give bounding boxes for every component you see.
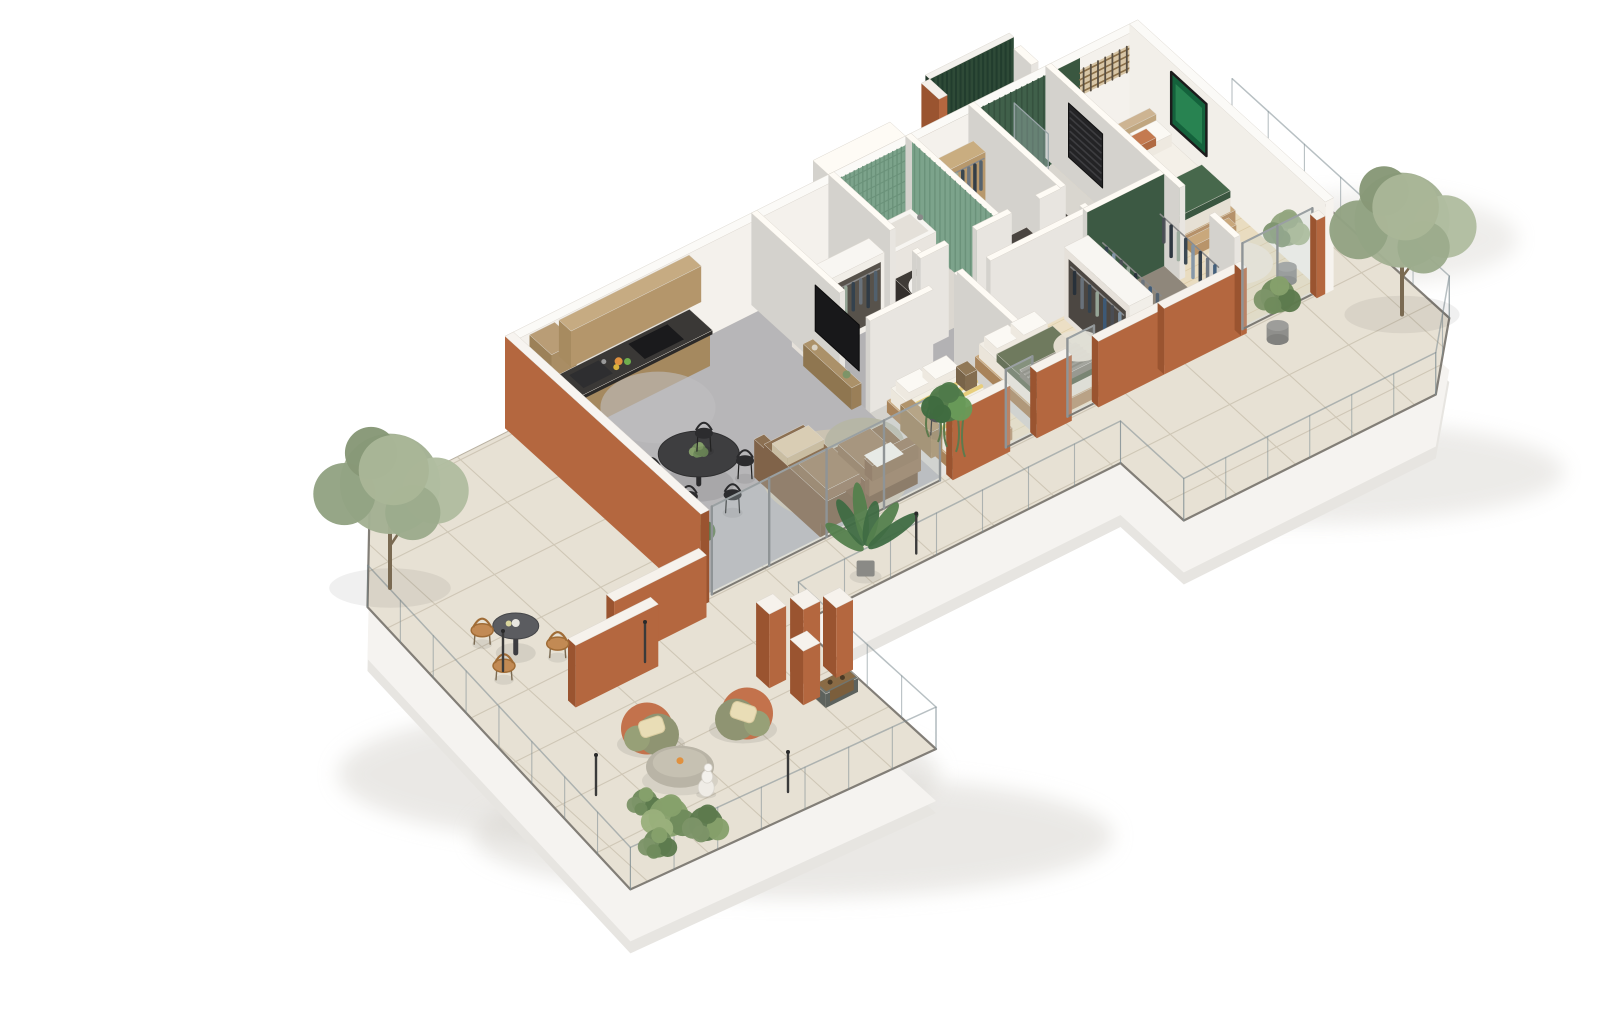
- bistro-flowers: [506, 620, 512, 626]
- floorplan-canvas: [0, 0, 1600, 1014]
- bedroom2-glass-door: [1067, 325, 1094, 416]
- console-deco: [812, 344, 818, 350]
- terracotta-planter: [823, 588, 853, 678]
- bistro-flowers: [512, 619, 520, 627]
- master-terrace-pot: [1267, 320, 1289, 345]
- bistro-chair: [547, 632, 569, 663]
- terrace-bench-pattern: [828, 680, 833, 685]
- pouf-toy: [677, 757, 684, 764]
- bathtub-faucet: [917, 214, 923, 220]
- console-plant: [843, 370, 851, 378]
- terrace-olive-tree: [1329, 166, 1476, 333]
- bedroom1-glass-door: [1006, 356, 1033, 447]
- terracotta-planter: [790, 631, 820, 705]
- kitchen-faucet: [601, 359, 606, 364]
- terracotta-planter: [756, 594, 786, 688]
- bistro-chair: [471, 619, 493, 650]
- fruit-bowl: [615, 357, 623, 365]
- fruit-bowl: [613, 364, 619, 370]
- master-front-pier: [1310, 210, 1325, 298]
- floorplan-3d-render: [0, 0, 1600, 1014]
- terrace-tree: [313, 427, 468, 608]
- fruit-bowl: [624, 358, 631, 365]
